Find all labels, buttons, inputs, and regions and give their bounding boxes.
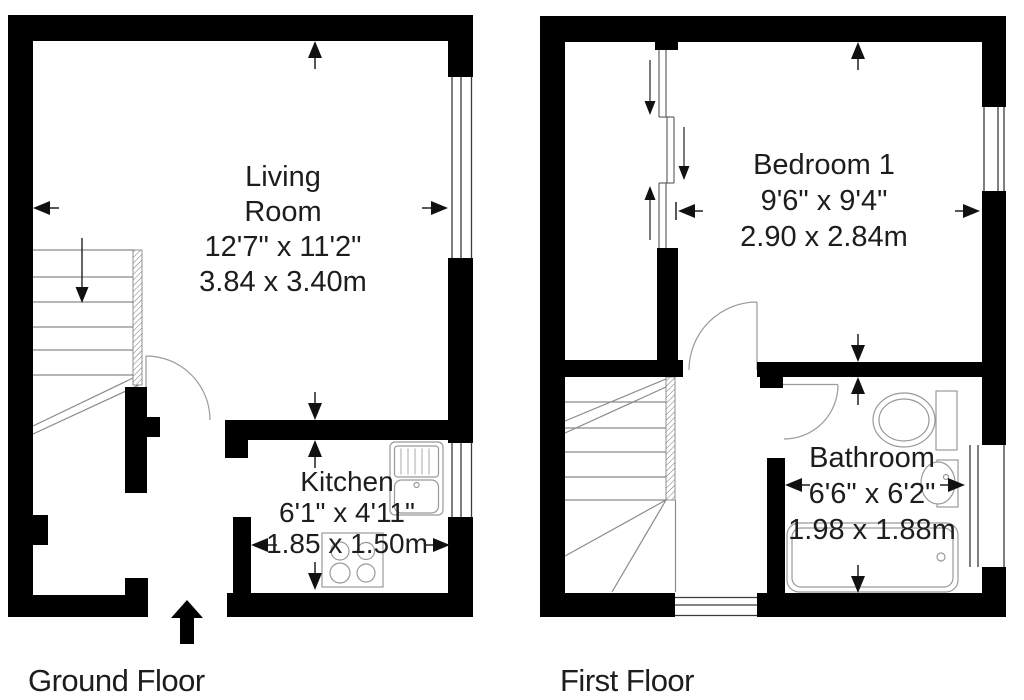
bedroom-1-label: Bedroom 1 9'6" x 9'4" 2.90 x 2.84m [740, 147, 908, 255]
living-room-name-line1: Living [199, 160, 367, 195]
living-room-label: Living Room 12'7" x 11'2" 3.84 x 3.40m [199, 160, 367, 300]
floorplan-canvas: Living Room 12'7" x 11'2" 3.84 x 3.40m K… [0, 0, 1024, 700]
gf-stairs-hatch-strip [133, 250, 142, 385]
bathroom-dims-m: 1.98 x 1.88m [788, 512, 956, 548]
gf-living-window [452, 77, 472, 258]
gf-living-door-icon [146, 356, 210, 420]
ff-bedroom-window [984, 107, 1004, 191]
bathroom-name: Bathroom [788, 440, 956, 476]
kitchen-dims-ft: 6'1" x 4'11" [266, 497, 428, 528]
kitchen-dims-m: 1.85 x 1.50m [266, 528, 428, 559]
bedroom-1-dims-m: 2.90 x 2.84m [740, 219, 908, 255]
bedroom-1-name: Bedroom 1 [740, 147, 908, 183]
gf-stairs [33, 250, 139, 434]
kitchen-label: Kitchen 6'1" x 4'11" 1.85 x 1.50m [266, 466, 428, 559]
ff-stairwell-partition [659, 50, 674, 248]
floorplan-svg [0, 0, 1024, 700]
gf-entrance-arrow-icon [171, 600, 203, 644]
ff-bedroom-door-icon [689, 302, 757, 370]
ff-bathroom-window [970, 445, 1004, 567]
kitchen-name: Kitchen [266, 466, 428, 497]
living-room-dims-ft: 12'7" x 11'2" [199, 230, 367, 265]
ff-landing-window [675, 598, 757, 616]
ff-stairs-hatch-strip [666, 377, 675, 500]
ff-bathroom-door-icon [783, 385, 838, 440]
bathroom-dims-ft: 6'6" x 6'2" [788, 476, 956, 512]
living-room-name-line2: Room [199, 195, 367, 230]
ground-floor-title: Ground Floor [28, 663, 205, 699]
ff-stairs [565, 379, 676, 592]
living-room-dims-m: 3.84 x 3.40m [199, 265, 367, 300]
gf-stairs-direction-arrow-icon [76, 238, 89, 303]
bathroom-label: Bathroom 6'6" x 6'2" 1.98 x 1.88m [788, 440, 956, 548]
bedroom-1-dims-ft: 9'6" x 9'4" [740, 183, 908, 219]
first-floor-title: First Floor [560, 663, 694, 699]
gf-kitchen-window [452, 443, 472, 517]
